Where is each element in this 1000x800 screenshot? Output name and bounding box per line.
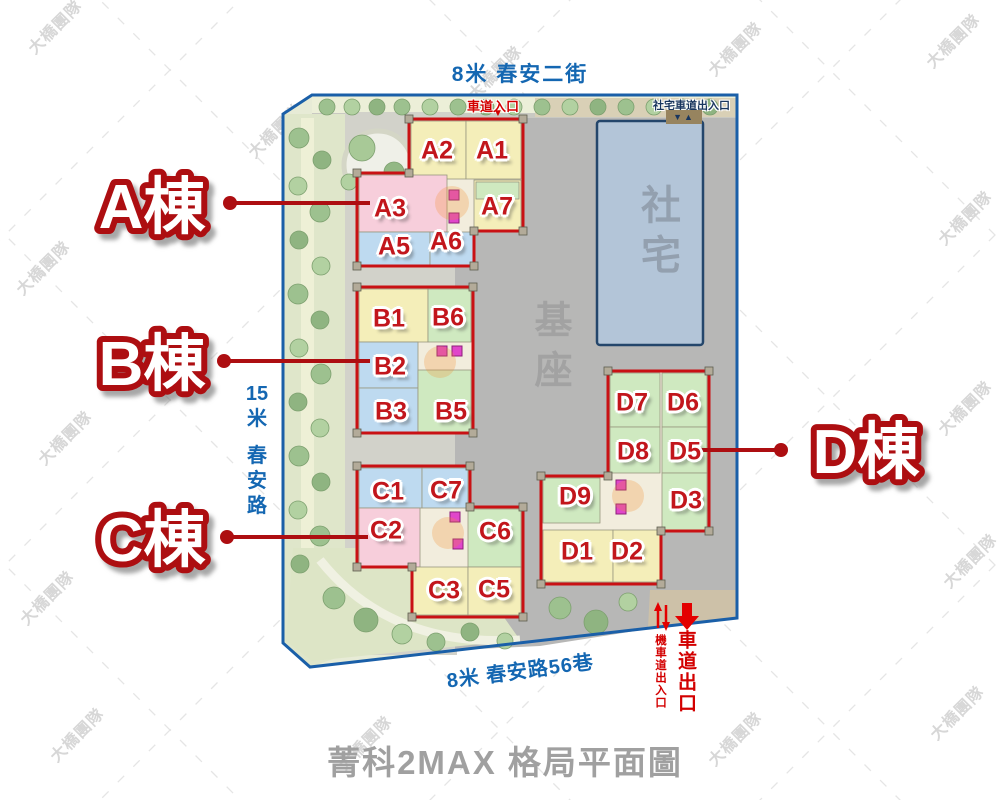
building-d-label: D棟: [761, 401, 971, 501]
social-housing-label: 社宅: [628, 184, 686, 284]
street-label-top: 8米 春安二街: [380, 58, 660, 88]
page-title: 菁科2MAX 格局平面圖: [295, 736, 715, 784]
unit-label-c6: C6: [479, 518, 511, 547]
unit-label-a1: A1: [476, 137, 508, 166]
unit-label-b2: B2: [374, 353, 406, 382]
building-b-label-text: B棟: [99, 330, 207, 399]
street-left-line: 春: [240, 444, 274, 469]
unit-label-d2: D2: [611, 538, 643, 567]
unit-label-c7: C7: [430, 477, 462, 506]
unit-label-c5: C5: [478, 576, 510, 605]
building-c-label-text: C棟: [99, 506, 207, 575]
unit-label-c2: C2: [370, 517, 402, 546]
unit-label-c1: C1: [372, 478, 404, 507]
unit-label-d3: D3: [670, 487, 702, 516]
driveway-entrance-arrow-icon: ▼: [493, 108, 503, 119]
site-plan-poster: 大橋團隊 大橋團隊 大橋團隊 大橋團隊 大橋團隊 大橋團隊 大橋團隊 大橋團隊 …: [0, 0, 1000, 800]
unit-label-b3: B3: [375, 398, 407, 427]
driveway-exit-label: 車道出口: [672, 630, 699, 714]
unit-label-a2: A2: [421, 137, 453, 166]
unit-label-b5: B5: [435, 398, 467, 427]
unit-label-a3: A3: [374, 195, 406, 224]
building-d-label-text: D棟: [813, 418, 921, 487]
unit-label-a5: A5: [378, 233, 410, 262]
unit-label-a7: A7: [481, 193, 513, 222]
unit-label-d6: D6: [667, 389, 699, 418]
unit-label-d5: D5: [669, 438, 701, 467]
unit-label-d8: D8: [617, 438, 649, 467]
building-a-label-text: A棟: [99, 173, 207, 242]
moto-entrance-label: 機車道出入口: [652, 634, 668, 709]
podium-label: 基座: [522, 300, 577, 400]
unit-label-d1: D1: [561, 538, 593, 567]
building-c-label: C棟: [47, 489, 257, 589]
unit-label-d7: D7: [616, 389, 648, 418]
unit-label-a6: A6: [430, 228, 462, 257]
unit-label-d9: D9: [559, 483, 591, 512]
unit-label-b1: B1: [373, 305, 405, 334]
unit-label-c3: C3: [428, 577, 460, 606]
unit-label-b6: B6: [432, 304, 464, 333]
social-driveway-arrows-icon: ▼▲: [666, 110, 702, 124]
building-a-label: A棟: [47, 156, 257, 256]
building-b-label: B棟: [47, 313, 257, 413]
